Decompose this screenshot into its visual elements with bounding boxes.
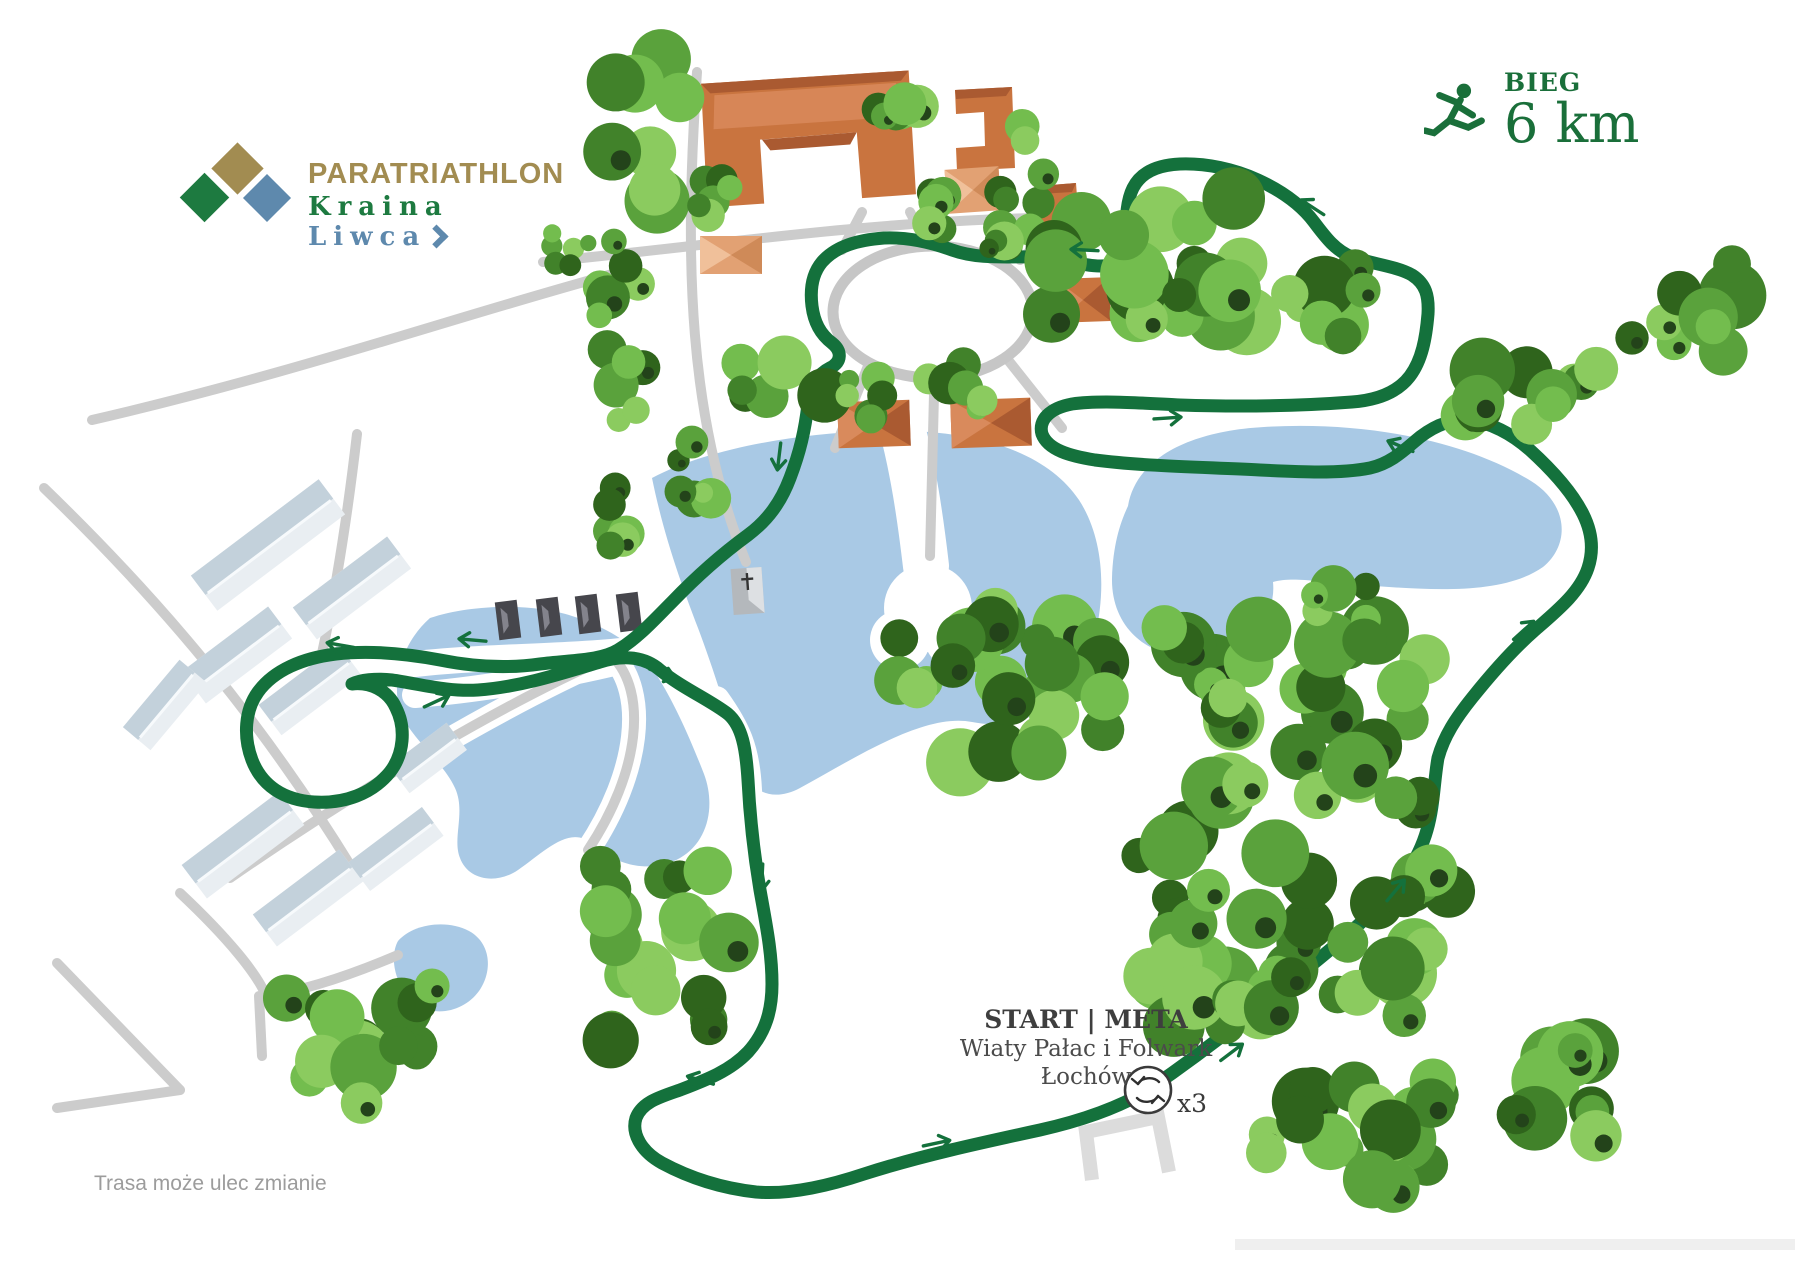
tree bbox=[1352, 573, 1379, 600]
tree bbox=[1187, 869, 1230, 912]
tree bbox=[1570, 1110, 1621, 1161]
tree bbox=[931, 643, 976, 688]
tree bbox=[655, 73, 704, 122]
tree bbox=[1301, 582, 1328, 609]
building-outline bbox=[1086, 1117, 1169, 1180]
tree bbox=[1535, 386, 1571, 422]
tree-shadow bbox=[1007, 697, 1026, 716]
tree-shadow bbox=[1146, 318, 1161, 333]
shed-building bbox=[575, 594, 601, 634]
logo-subtitle-word2: Liwca bbox=[308, 222, 426, 252]
tree bbox=[580, 885, 632, 937]
tree bbox=[580, 846, 621, 887]
tree bbox=[1325, 318, 1362, 355]
shed-building bbox=[495, 600, 521, 640]
tree bbox=[1270, 724, 1326, 780]
logo-title: PARATRIATHLON bbox=[308, 158, 564, 191]
tree-shadow bbox=[613, 241, 622, 250]
course-map-page: x3 START | META Wiaty Pałac i Folwark Ło… bbox=[0, 0, 1800, 1273]
tree-shadow bbox=[1297, 750, 1317, 770]
tree bbox=[897, 668, 938, 709]
tree bbox=[612, 345, 646, 379]
tree bbox=[596, 532, 624, 560]
tree-cluster bbox=[1497, 1018, 1622, 1161]
tree-cluster bbox=[583, 29, 704, 233]
tree-shadow bbox=[989, 248, 996, 255]
direction-arrow-icon bbox=[1154, 410, 1182, 426]
tree bbox=[1346, 273, 1381, 308]
tree-shadow bbox=[1232, 722, 1249, 739]
tree bbox=[691, 1008, 728, 1045]
tree bbox=[1361, 936, 1425, 1000]
farm-building bbox=[293, 537, 411, 640]
tree-shadow bbox=[1244, 783, 1260, 799]
attribution-strip bbox=[1235, 1239, 1795, 1250]
event-logo: PARATRIATHLON Kraina Liwca bbox=[90, 70, 550, 180]
tree bbox=[1209, 679, 1248, 718]
shed-building bbox=[616, 592, 642, 632]
tree-shadow bbox=[1043, 173, 1054, 184]
tree-shadow bbox=[1430, 1102, 1447, 1119]
tree bbox=[699, 913, 759, 973]
tree-shadow bbox=[1290, 976, 1304, 990]
tree-shadow bbox=[285, 997, 302, 1014]
tree-cluster bbox=[1246, 1059, 1459, 1213]
tree bbox=[1226, 597, 1291, 662]
laps-loop-icon bbox=[1125, 1067, 1171, 1113]
tree bbox=[1025, 637, 1080, 692]
chevron-right-icon bbox=[425, 224, 449, 248]
tree-shadow bbox=[1673, 342, 1685, 354]
tree bbox=[676, 426, 709, 459]
tree bbox=[580, 235, 596, 251]
tree-shadow bbox=[1515, 1114, 1529, 1128]
tree-shadow bbox=[1193, 996, 1215, 1018]
tree-shadow bbox=[1403, 1014, 1418, 1029]
tree-cluster bbox=[593, 473, 645, 560]
tree-shadow bbox=[1255, 917, 1276, 938]
tree-cluster bbox=[1271, 249, 1380, 354]
tree bbox=[1713, 245, 1751, 283]
tree bbox=[880, 619, 918, 657]
tree bbox=[1222, 761, 1268, 807]
roof-ridge bbox=[208, 500, 331, 593]
farm-building bbox=[123, 660, 207, 751]
tree bbox=[665, 476, 697, 508]
farm-building bbox=[348, 807, 443, 891]
chapel-building bbox=[731, 567, 765, 615]
tree-cluster bbox=[1441, 338, 1618, 445]
tree bbox=[1271, 957, 1311, 997]
tree-shadow bbox=[680, 491, 691, 502]
tree bbox=[1615, 321, 1648, 354]
tree-shadow bbox=[928, 222, 940, 234]
tree-cluster bbox=[580, 846, 759, 1069]
tree-shadow bbox=[1316, 794, 1333, 811]
tree bbox=[601, 229, 627, 255]
tree bbox=[684, 847, 732, 895]
tree-shadow bbox=[1574, 1050, 1586, 1062]
tree bbox=[629, 164, 680, 215]
tree bbox=[1202, 167, 1265, 230]
tree bbox=[1271, 275, 1308, 312]
palace-driveway-oval bbox=[833, 246, 1033, 378]
tree bbox=[856, 404, 885, 433]
tree bbox=[727, 376, 756, 405]
tree bbox=[1696, 309, 1731, 344]
tree-shadow bbox=[1631, 337, 1643, 349]
tree-shadow bbox=[1430, 869, 1448, 887]
logo-subtitle: Kraina Liwca bbox=[308, 192, 550, 252]
disclaimer-note: Trasa może ulec zmianie bbox=[94, 1172, 327, 1196]
outbuilding bbox=[700, 236, 762, 274]
tree-cluster bbox=[263, 969, 450, 1124]
tree-shadow bbox=[678, 460, 686, 468]
tree bbox=[1011, 126, 1040, 155]
tree bbox=[559, 254, 581, 276]
tree bbox=[1011, 726, 1066, 781]
road bbox=[259, 996, 262, 1056]
tree bbox=[883, 82, 926, 125]
tree-shadow bbox=[1362, 289, 1374, 301]
tree bbox=[1142, 605, 1187, 650]
tree bbox=[1028, 158, 1059, 189]
tree bbox=[1099, 210, 1149, 260]
tree bbox=[982, 672, 1035, 725]
tree-shadow bbox=[1270, 1006, 1289, 1025]
tree bbox=[1321, 732, 1389, 800]
tree bbox=[836, 384, 859, 407]
tree bbox=[687, 194, 711, 218]
tree bbox=[1327, 922, 1368, 963]
tree bbox=[717, 175, 742, 200]
tree bbox=[583, 1012, 639, 1068]
tree bbox=[1558, 1033, 1593, 1068]
tree-shadow bbox=[360, 1102, 375, 1117]
distance-legend: BIEG 6 km bbox=[1424, 68, 1639, 151]
tree-shadow bbox=[611, 150, 631, 170]
tree bbox=[993, 187, 1019, 213]
road bbox=[57, 963, 180, 1090]
road bbox=[57, 1090, 180, 1108]
tree bbox=[1246, 1133, 1287, 1174]
tree bbox=[415, 969, 450, 1004]
runner-icon bbox=[1424, 80, 1486, 146]
tree-shadow bbox=[691, 441, 702, 452]
tree bbox=[1226, 889, 1286, 949]
tree bbox=[1023, 286, 1080, 343]
shed-building bbox=[536, 597, 562, 637]
direction-arrow-icon bbox=[1154, 410, 1182, 426]
road bbox=[92, 272, 620, 420]
tree bbox=[1276, 1096, 1324, 1144]
tree bbox=[583, 123, 641, 181]
tree-shadow bbox=[1595, 1135, 1613, 1153]
logo-subtitle-word1: Kraina bbox=[308, 192, 449, 222]
legend-distance: 6 km bbox=[1504, 97, 1639, 151]
tree-shadow bbox=[637, 283, 649, 295]
start-meta-venue-line1: Wiaty Pałac i Folwark bbox=[960, 1036, 1213, 1062]
tree-shadow bbox=[952, 664, 968, 680]
tree bbox=[379, 1026, 418, 1065]
tree bbox=[1377, 660, 1429, 712]
tree bbox=[1081, 672, 1129, 720]
tree bbox=[623, 397, 650, 424]
start-meta-marker: x3 bbox=[1125, 1067, 1207, 1118]
tree-cluster bbox=[588, 330, 661, 432]
bridge-path bbox=[930, 394, 934, 556]
tree bbox=[1162, 278, 1196, 312]
tree-shadow bbox=[1192, 922, 1209, 939]
start-meta-title: START | META bbox=[984, 1005, 1188, 1034]
tree bbox=[1574, 347, 1618, 391]
tree bbox=[341, 1082, 383, 1124]
tree bbox=[1140, 812, 1208, 880]
tree bbox=[1452, 375, 1504, 427]
tree bbox=[263, 975, 310, 1022]
tree-shadow bbox=[708, 1026, 721, 1039]
tree-shadow bbox=[1477, 400, 1495, 418]
tree-cluster bbox=[1615, 245, 1766, 375]
tree bbox=[979, 239, 998, 258]
tree bbox=[1241, 819, 1309, 887]
tree-shadow bbox=[989, 623, 1009, 643]
tree bbox=[631, 966, 681, 1016]
tree bbox=[1198, 259, 1261, 322]
tree bbox=[593, 488, 626, 521]
tree bbox=[912, 206, 946, 240]
tree-shadow bbox=[1314, 594, 1323, 603]
tree bbox=[967, 385, 998, 416]
tree-shadow bbox=[431, 985, 443, 997]
tree-shadow bbox=[1228, 289, 1250, 311]
tree-shadow bbox=[1331, 711, 1353, 733]
tree bbox=[586, 303, 612, 329]
tree-shadow bbox=[727, 941, 748, 962]
tree bbox=[1342, 618, 1386, 662]
laps-count-label: x3 bbox=[1177, 1089, 1207, 1118]
tree bbox=[587, 53, 645, 111]
tree-cluster bbox=[687, 164, 742, 232]
tree bbox=[1343, 1150, 1401, 1208]
tree bbox=[1024, 229, 1087, 292]
start-meta-venue-line2: Łochów bbox=[1041, 1064, 1132, 1090]
tree-shadow bbox=[1663, 321, 1676, 334]
tree bbox=[1497, 1095, 1536, 1134]
tree-shadow bbox=[1207, 889, 1222, 904]
tree-shadow bbox=[1050, 313, 1070, 333]
tree-cluster bbox=[1319, 844, 1475, 1037]
tree-shadow bbox=[1354, 764, 1378, 788]
